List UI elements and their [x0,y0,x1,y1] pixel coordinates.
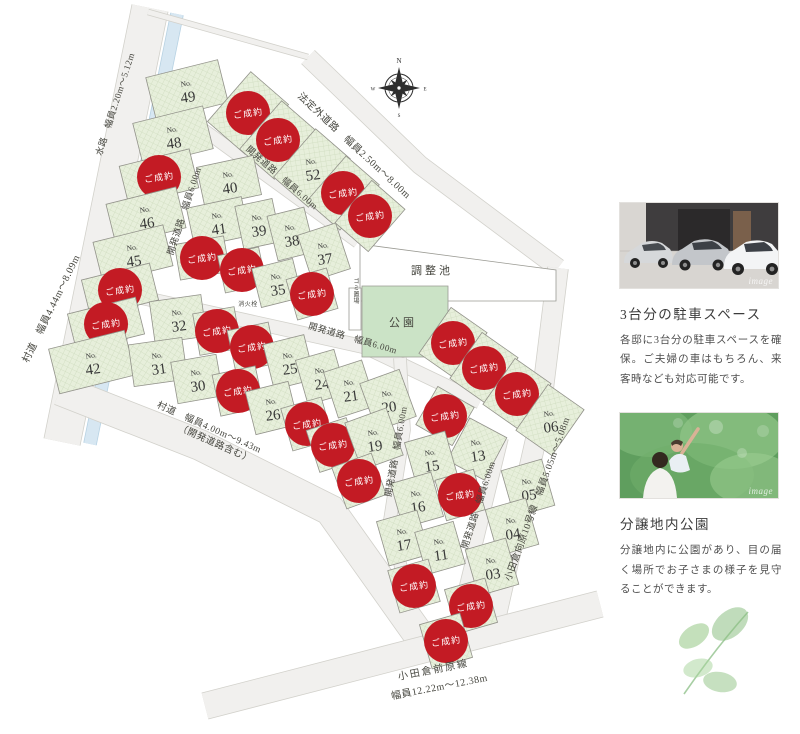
image-watermark: image [749,486,774,496]
map-label: 消火栓 [238,300,258,308]
park-title: 分譲地内公園 [620,513,782,533]
parking-description: 各邸に3台分の駐車スペースを確保。ご夫婦の車はもちろん、来客時なども対応可能です… [620,331,782,389]
park-photo: image [620,413,778,498]
compass-rose: NESW [371,57,427,119]
site-plan-map: No.49No.48ご成約No.46No.45ご成約ご成約No.42ご成約ご成約… [0,0,618,734]
compass-letter: W [371,88,376,93]
park-description: 分譲地内に公園があり、目の届く場所でお子さまの様子を見守ることができます。 [620,541,782,599]
parking-title: 3台分の駐車スペース [620,303,782,323]
image-watermark: image [749,276,774,286]
page: No.49No.48ご成約No.46No.45ご成約ご成約No.42ご成約ご成約… [0,0,800,734]
leaf-decoration [652,596,772,711]
lot-42: No.42 [49,330,136,394]
compass-letter: N [396,57,401,65]
compass-letter: S [398,114,401,119]
compass-letter: E [423,88,426,93]
parking-photo: image [620,203,778,288]
map-label: 公園 [389,316,417,329]
map-label: ゴミ置場 [352,277,359,305]
map-label: 調整池 [411,263,453,277]
sidebar: image 3台分の駐車スペース 各邸に3台分の駐車スペースを確保。ご夫婦の車は… [620,203,782,600]
